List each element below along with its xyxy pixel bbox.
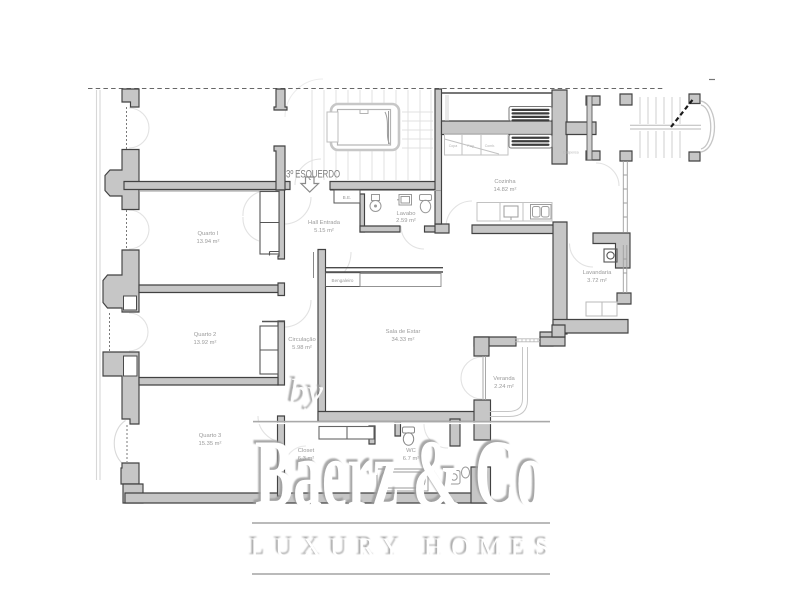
svg-text:5.15 m²: 5.15 m² xyxy=(314,228,334,234)
svg-text:Sala de Estar: Sala de Estar xyxy=(386,329,421,335)
svg-text:13.92 m²: 13.92 m² xyxy=(194,340,217,346)
svg-text:Quarto 2: Quarto 2 xyxy=(194,332,217,338)
svg-text:Copa: Copa xyxy=(449,144,458,148)
svg-text:Baerz & Co: Baerz & Co xyxy=(255,420,545,527)
svg-text:14.82 m²: 14.82 m² xyxy=(494,187,517,193)
svg-text:2.59 m²: 2.59 m² xyxy=(396,218,416,224)
svg-text:Fog.: Fog. xyxy=(467,144,474,148)
svg-text:34.33 m²: 34.33 m² xyxy=(392,337,415,343)
svg-text:5.98 m²: 5.98 m² xyxy=(292,345,312,351)
svg-text:Bengaleiro: Bengaleiro xyxy=(332,278,354,283)
svg-text:Quarto I: Quarto I xyxy=(198,231,219,237)
svg-text:by: by xyxy=(289,372,323,412)
svg-text:Quarto 3: Quarto 3 xyxy=(199,433,222,439)
svg-text:Lavabo: Lavabo xyxy=(396,211,415,217)
svg-text:Hall Entrada: Hall Entrada xyxy=(308,220,341,226)
svg-text:2.24 m²: 2.24 m² xyxy=(494,384,514,390)
svg-text:3º ESQUERDO: 3º ESQUERDO xyxy=(286,168,341,181)
svg-text:Despensa: Despensa xyxy=(563,151,578,155)
svg-text:Cozinha: Cozinha xyxy=(494,179,516,185)
svg-text:Lavandaria: Lavandaria xyxy=(583,270,612,276)
svg-text:Comb.: Comb. xyxy=(485,144,496,148)
svg-text:3.72 m²: 3.72 m² xyxy=(587,278,607,284)
svg-text:13.94 m²: 13.94 m² xyxy=(197,239,220,245)
svg-text:15.35 m²: 15.35 m² xyxy=(199,441,222,447)
svg-text:Circulação: Circulação xyxy=(288,337,315,343)
svg-text:Veranda: Veranda xyxy=(493,376,515,382)
svg-text:B.E.: B.E. xyxy=(343,195,352,200)
